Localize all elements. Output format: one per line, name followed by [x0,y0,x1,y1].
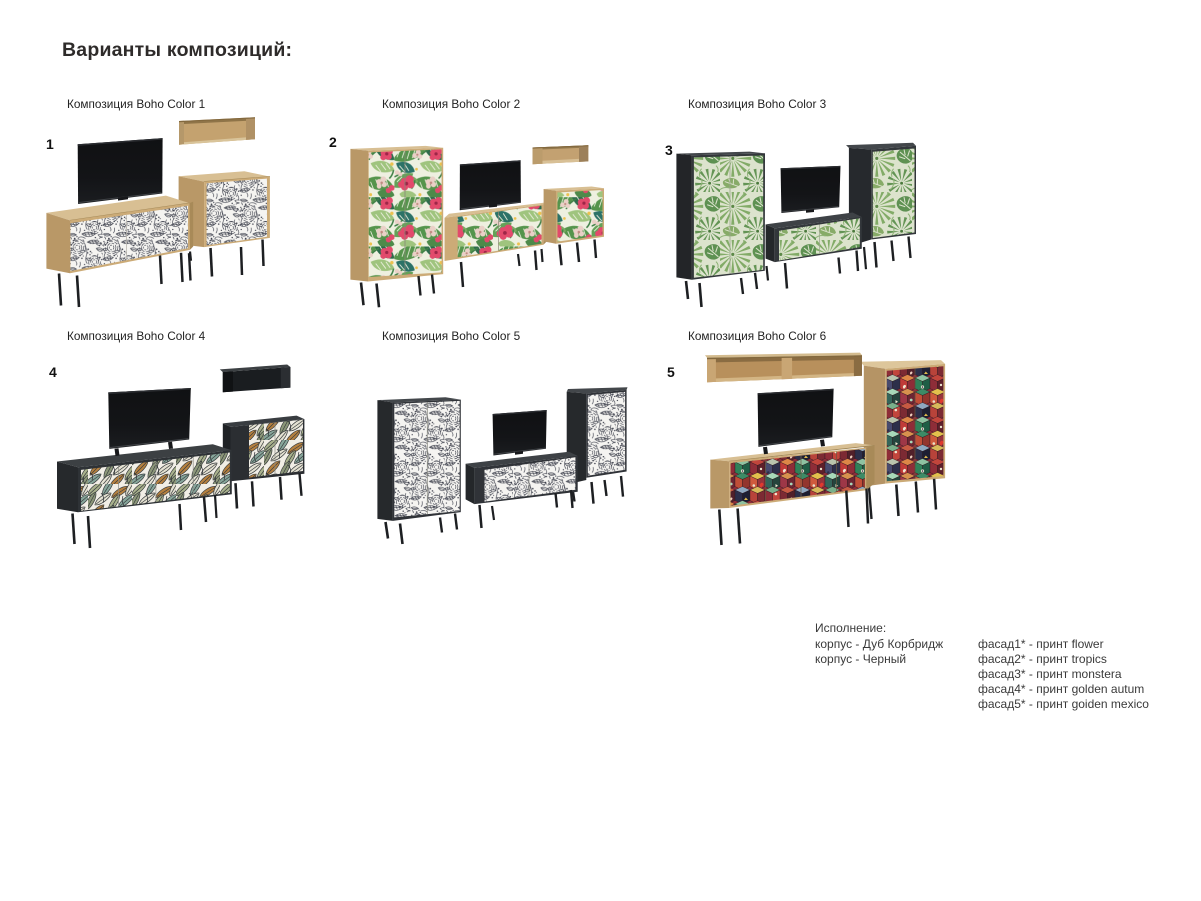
svg-text:фасад5* - принт goiden mexico: фасад5* - принт goiden mexico [978,697,1149,711]
svg-text:фасад1* - принт flower: фасад1* - принт flower [978,637,1104,651]
svg-text:1: 1 [46,136,54,152]
svg-text:корпус - Дуб Корбридж: корпус - Дуб Корбридж [815,637,943,651]
svg-text:Исполнение:: Исполнение: [815,621,886,635]
svg-text:Композиция Boho Color 3: Композиция Boho Color 3 [688,97,827,111]
svg-text:Композиция Boho Color 4: Композиция Boho Color 4 [67,329,206,343]
svg-text:4: 4 [49,364,57,380]
svg-text:Композиция Boho Color 1: Композиция Boho Color 1 [67,97,205,111]
svg-text:2: 2 [329,134,337,150]
svg-text:Композиция Boho Color 5: Композиция Boho Color 5 [382,329,521,343]
svg-text:фасад3* - принт monstera: фасад3* - принт monstera [978,667,1122,681]
svg-text:Варианты композиций:: Варианты композиций: [62,39,292,61]
svg-text:Композиция Boho Color 6: Композиция Boho Color 6 [688,329,827,343]
svg-text:фасад4* - принт golden autum: фасад4* - принт golden autum [978,682,1144,696]
svg-text:Композиция Boho Color 2: Композиция Boho Color 2 [382,97,520,111]
svg-text:корпус - Черный: корпус - Черный [815,652,906,666]
svg-text:3: 3 [665,142,673,158]
svg-text:5: 5 [667,364,675,380]
svg-text:фасад2* - принт tropics: фасад2* - принт tropics [978,652,1107,666]
